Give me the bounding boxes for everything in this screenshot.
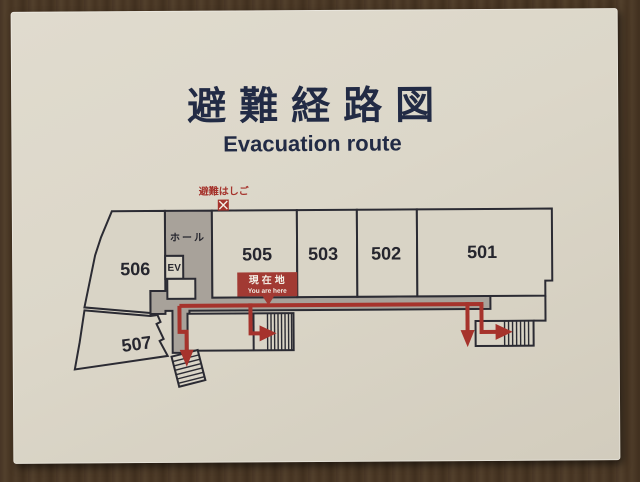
hall-label: ホール [170, 232, 206, 244]
room-label-501: 501 [467, 242, 497, 262]
sign-board: 避難経路図 Evacuation route [11, 8, 621, 464]
room-label-503: 503 [308, 244, 338, 264]
sign-title-japanese: 避難経路図 [187, 84, 447, 129]
photo-of-evacuation-sign: { "sign": { "title_ja": "避難経路図", "title_… [0, 0, 640, 480]
sign-title-english: Evacuation route [223, 130, 402, 156]
elevator-label: EV [167, 263, 181, 274]
ladder-icon [218, 200, 229, 211]
building-edge-right [533, 296, 545, 321]
ladder-label: 避難はしご [198, 184, 250, 197]
recess-box [167, 279, 195, 299]
route-arrow-down-right [461, 330, 475, 347]
room-label-502: 502 [371, 243, 401, 263]
floor-plan: 避難経路図 Evacuation route [0, 0, 640, 482]
room-label-505: 505 [242, 244, 272, 264]
you-are-here-japanese: 現在地 [249, 273, 288, 286]
room-label-507: 507 [120, 332, 152, 356]
you-are-here-english: You are here [248, 288, 287, 295]
room-label-506: 506 [120, 259, 150, 279]
